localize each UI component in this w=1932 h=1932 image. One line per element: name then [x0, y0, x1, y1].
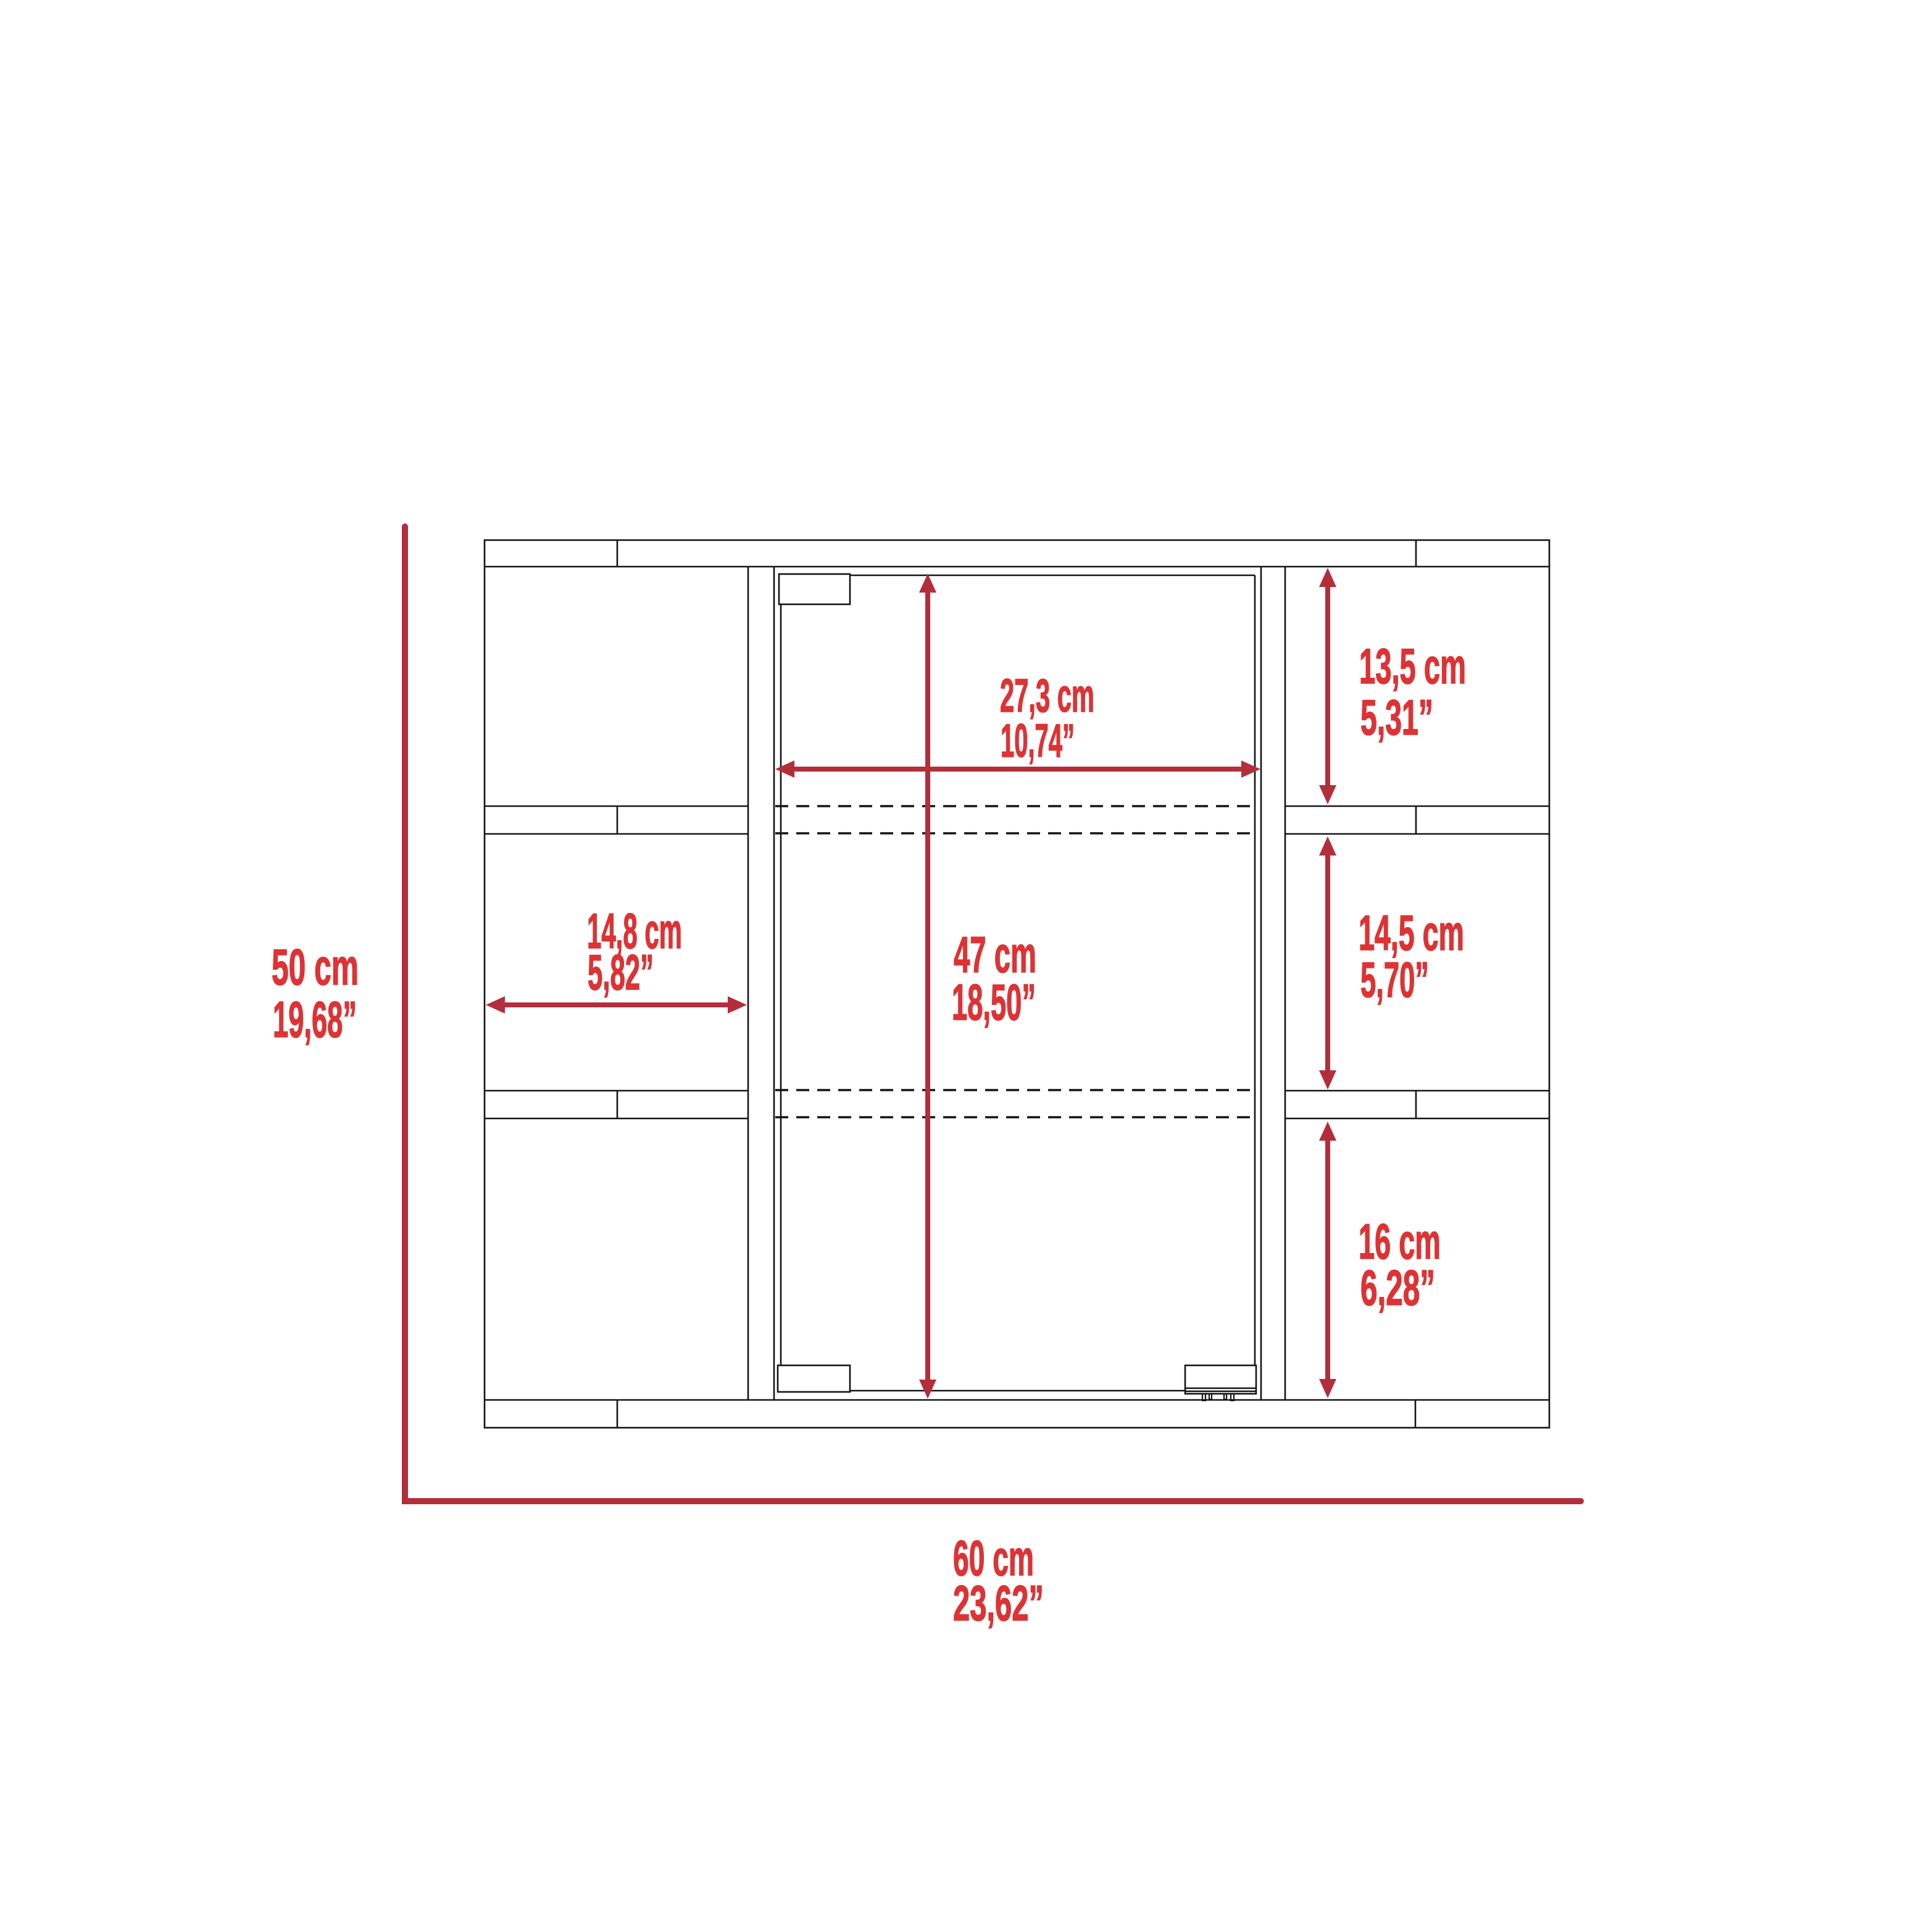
svg-text:5,70”: 5,70”	[1360, 952, 1429, 1008]
svg-text:13,5 cm: 13,5 cm	[1359, 639, 1466, 694]
svg-text:18,50”: 18,50”	[952, 973, 1036, 1031]
svg-text:6,28”: 6,28”	[1360, 1260, 1435, 1316]
svg-text:10,74”: 10,74”	[1001, 715, 1075, 767]
svg-text:5,82”: 5,82”	[588, 945, 654, 1001]
svg-text:19,68”: 19,68”	[273, 991, 357, 1048]
svg-text:50 cm: 50 cm	[272, 938, 359, 996]
svg-text:23,62”: 23,62”	[953, 1576, 1044, 1631]
svg-text:5,31”: 5,31”	[1360, 690, 1433, 746]
